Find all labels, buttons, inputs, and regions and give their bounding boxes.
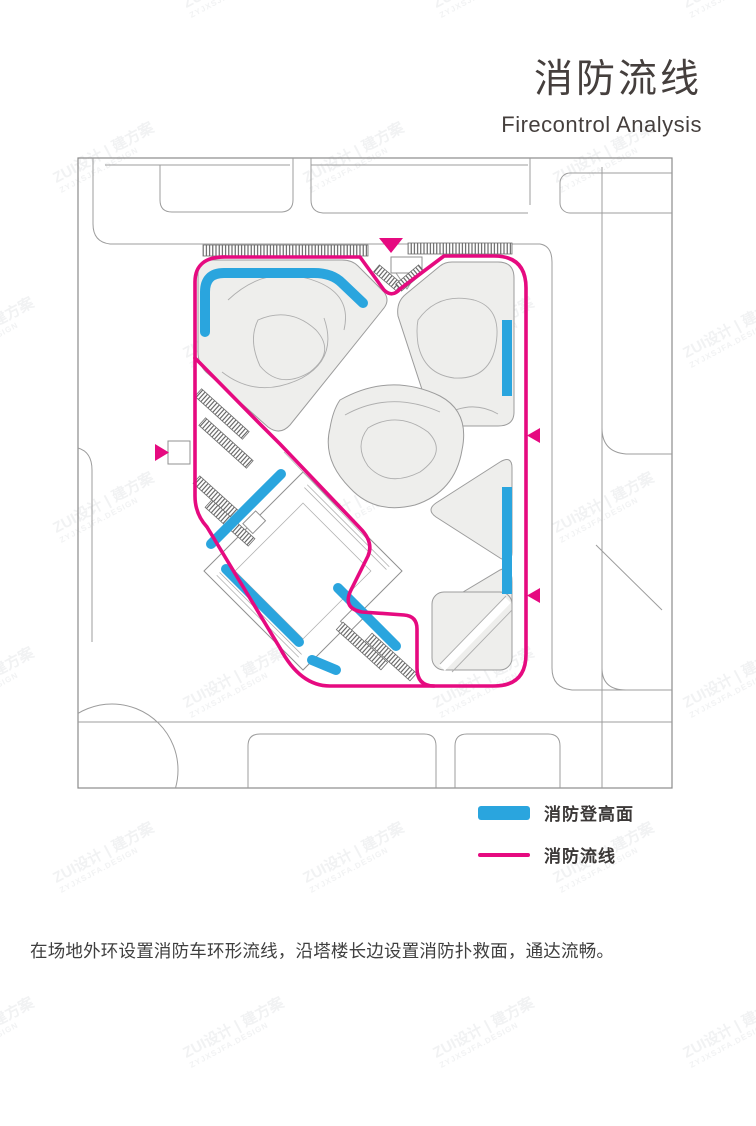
- fire-access-bar: [312, 660, 336, 670]
- description-text: 在场地外环设置消防车环形流线，沿塔楼长边设置消防扑救面，通达流畅。: [30, 938, 690, 963]
- legend-swatch-blue-bar: [478, 806, 530, 820]
- legend-item-fire-route: 消防流线: [478, 842, 634, 867]
- entrance-arrow-right: [155, 444, 169, 461]
- header: 消防流线 Firecontrol Analysis: [501, 48, 702, 138]
- page-title: 消防流线: [501, 48, 702, 104]
- page: ZUI设计 | 建方案ZYJXSJFA.DESIGNZUI设计 | 建方案ZYJ…: [0, 0, 756, 1126]
- legend: 消防登高面 消防流线: [478, 800, 634, 884]
- entrance-arrow-left-lower: [527, 588, 540, 603]
- legend-item-fire-access: 消防登高面: [478, 800, 634, 825]
- legend-label: 消防流线: [544, 842, 616, 867]
- entrance-arrow-left-upper: [527, 428, 540, 443]
- legend-label: 消防登高面: [544, 800, 634, 825]
- entrance-arrow-down: [379, 238, 403, 253]
- legend-swatch-pink-line: [478, 853, 530, 857]
- gatehouse-west: [168, 441, 190, 464]
- page-subtitle: Firecontrol Analysis: [501, 112, 702, 138]
